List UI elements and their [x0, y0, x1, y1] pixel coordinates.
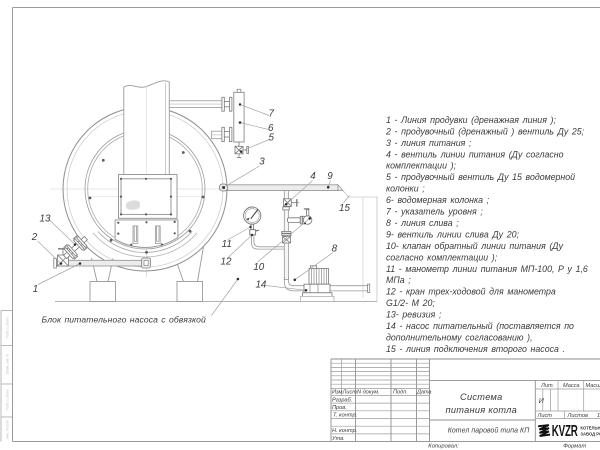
svg-text:14 - насос питательный (пост: 14 - насос питательный (поставляется по	[386, 321, 574, 331]
svg-text:ЗАВОД РОСС: ЗАВОД РОСС	[580, 432, 600, 437]
svg-text:Масш: Масш	[586, 383, 600, 389]
svg-text:7: 7	[268, 108, 274, 119]
svg-text:МПа ;: МПа ;	[386, 275, 411, 285]
svg-text:13: 13	[40, 213, 51, 224]
svg-text:1 - Линия продувки (дренажна: 1 - Линия продувки (дренажная линия );	[386, 115, 556, 125]
svg-text:питания котла: питания котла	[446, 405, 518, 415]
svg-text:6- водомерная колонка ;: 6- водомерная колонка ;	[386, 195, 490, 205]
svg-text:12: 12	[221, 257, 232, 268]
svg-text:2: 2	[31, 232, 38, 243]
svg-text:10- клапан обратный линии пит: 10- клапан обратный линии питания (Ду	[386, 241, 564, 251]
svg-text:Блок питательного насоса с обв: Блок питательного насоса с обвязкой	[42, 315, 207, 325]
svg-text:12 - кран трех-ходовой для ма: 12 - кран трех-ходовой для манометра	[386, 287, 556, 297]
svg-text:G1/2- М 20;: G1/2- М 20;	[386, 298, 435, 308]
svg-text:9- вентиль линии слива Ду 20: 9- вентиль линии слива Ду 20;	[386, 229, 519, 239]
svg-text:Пров.: Пров.	[332, 405, 347, 411]
svg-text:Котел паровой типа КП: Котел паровой типа КП	[448, 427, 530, 435]
svg-text:дополнительному согласованию ): дополнительному согласованию ),	[386, 333, 533, 343]
svg-text:10: 10	[253, 262, 264, 273]
svg-text:Масса: Масса	[563, 383, 580, 389]
svg-text:Листов: Листов	[567, 413, 588, 419]
svg-text:Копировал:: Копировал:	[428, 443, 459, 449]
svg-text:Утв.: Утв.	[331, 436, 345, 442]
svg-text:8: 8	[332, 243, 338, 254]
svg-text:согласно комплектации );: согласно комплектации );	[386, 252, 498, 262]
svg-text:13- ревизия ;: 13- ревизия ;	[386, 310, 442, 320]
svg-text:колонки ;: колонки ;	[386, 184, 425, 194]
svg-text:2 - продувочный (дренажный ): 2 - продувочный (дренажный ) вентиль Ду …	[385, 126, 585, 136]
svg-text:Т. контр.: Т. контр.	[333, 413, 357, 419]
svg-text:5 - продувочный вентиль Ду 15: 5 - продувочный вентиль Ду 15 водомерной	[386, 172, 575, 182]
svg-text:КОТЕЛЬНЫЙ: КОТЕЛЬНЫЙ	[580, 426, 600, 431]
svg-text:15 - линия подключения второг: 15 - линия подключения второго насоса .	[386, 344, 565, 354]
svg-text:4 - вентиль линии питания (Д: 4 - вентиль линии питания (Ду согласно	[386, 149, 564, 159]
svg-text:7 - указатель уровня ;: 7 - указатель уровня ;	[386, 207, 483, 217]
svg-text:Подп. и дата: Подп. и дата	[6, 317, 10, 338]
svg-text:Дата: Дата	[416, 390, 431, 396]
svg-text:Лист: Лист	[342, 390, 358, 396]
svg-text:8 - линия слива ;: 8 - линия слива ;	[386, 218, 459, 228]
svg-text:Взам. инв. N: Взам. инв. N	[6, 354, 10, 374]
svg-text:Н. контр.: Н. контр.	[332, 428, 357, 434]
svg-text:3: 3	[259, 156, 265, 167]
svg-text:11: 11	[222, 239, 232, 250]
svg-text:комплектации );: комплектации );	[386, 161, 457, 171]
svg-text:14: 14	[255, 279, 266, 290]
svg-text:1: 1	[33, 284, 38, 295]
svg-text:15: 15	[339, 203, 350, 214]
svg-text:3 - линия питания ;: 3 - линия питания ;	[386, 138, 472, 148]
svg-text:Подп. и дата: Подп. и дата	[6, 389, 10, 410]
svg-text:9: 9	[327, 171, 333, 182]
svg-text:N докум.: N докум.	[357, 390, 380, 396]
svg-text:KVZR: KVZR	[552, 422, 578, 440]
svg-text:Лист: Лист	[537, 413, 553, 419]
svg-text:11 - манометр линии питания: 11 - манометр линии питания МП-100, Р у …	[386, 264, 588, 274]
svg-text:Лит.: Лит.	[540, 383, 554, 389]
svg-text:4: 4	[310, 171, 316, 182]
svg-text:Система: Система	[460, 392, 503, 402]
svg-text:Формат: Формат	[563, 443, 586, 449]
svg-text:Подп.: Подп.	[393, 390, 408, 396]
svg-text:5: 5	[268, 133, 274, 144]
svg-text:Инв. N подл.: Инв. N подл.	[6, 419, 10, 439]
svg-text:Разраб.: Разраб.	[332, 397, 352, 403]
